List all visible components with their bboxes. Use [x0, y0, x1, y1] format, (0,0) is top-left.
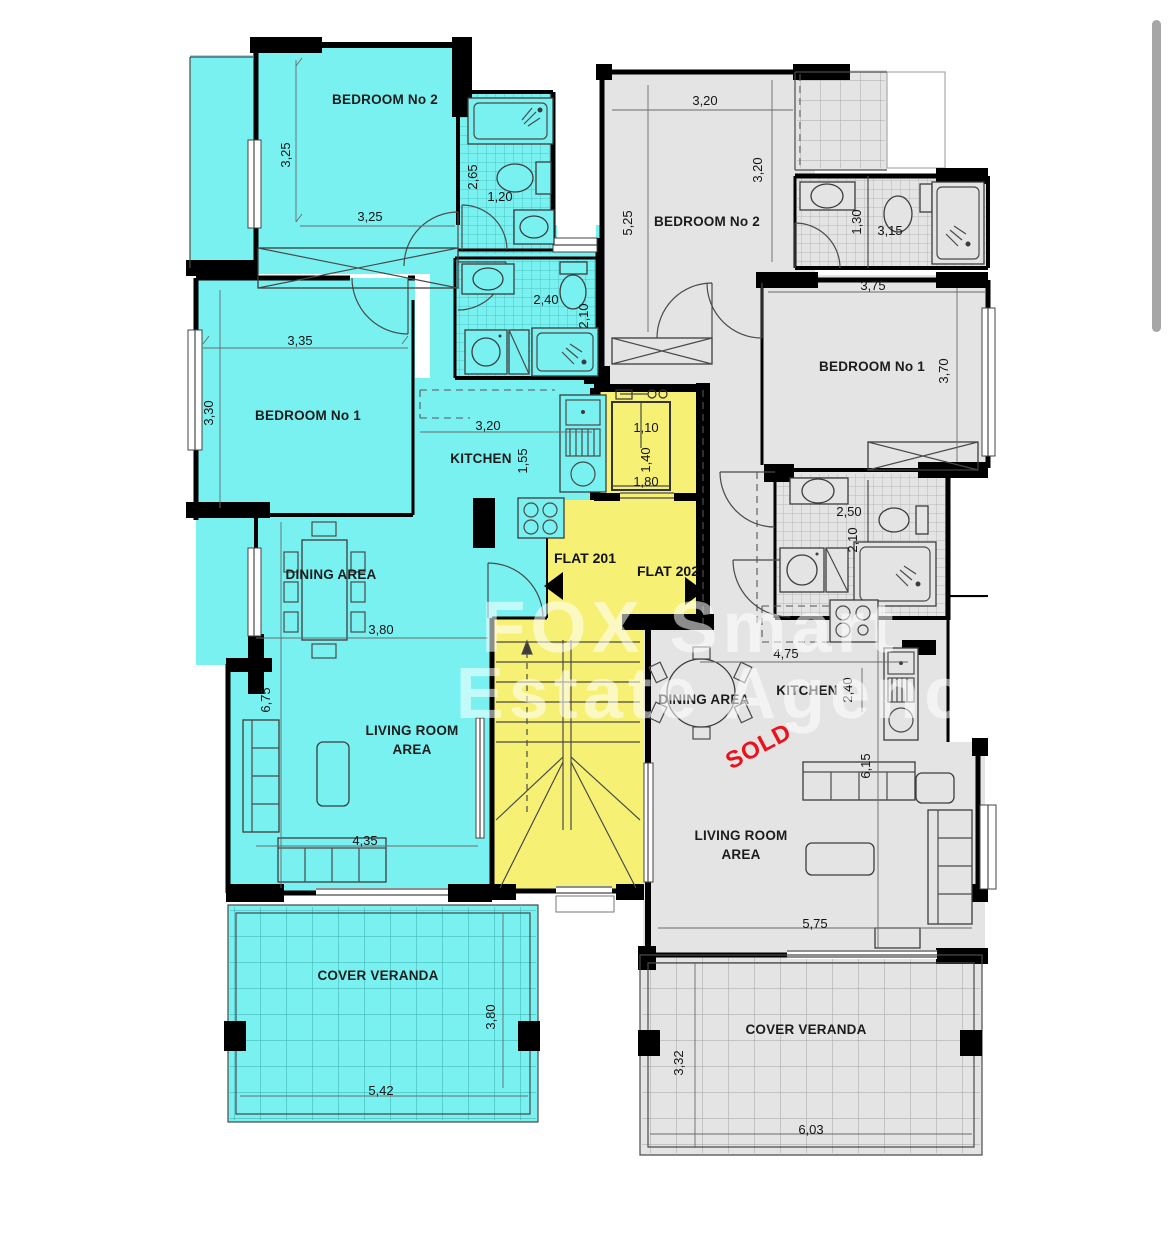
- sofa: [243, 720, 279, 832]
- cabinet: [509, 330, 529, 374]
- svg-text:3,15: 3,15: [877, 223, 902, 238]
- svg-text:3,75: 3,75: [860, 278, 885, 293]
- svg-text:2,65: 2,65: [465, 164, 480, 189]
- sink: [462, 264, 514, 294]
- floor-plan-page: BEDROOM No 2 3,25 3,25 2,65 1,20 2,40 2,…: [0, 0, 1170, 1240]
- svg-text:3,35: 3,35: [287, 333, 312, 348]
- shower: [468, 98, 553, 144]
- room-label-bedroom2: BEDROOM No 2: [654, 214, 760, 229]
- flat201-label: FLAT 201: [554, 550, 616, 566]
- svg-text:3,25: 3,25: [278, 142, 293, 167]
- room-label-bedroom1: BEDROOM No 1: [819, 359, 925, 374]
- svg-text:3,32: 3,32: [671, 1050, 686, 1075]
- sink: [514, 210, 554, 244]
- svg-text:3,30: 3,30: [201, 400, 216, 425]
- room-label-veranda: COVER VERANDA: [317, 968, 438, 983]
- toilet: [560, 262, 587, 309]
- svg-text:3,20: 3,20: [750, 157, 765, 182]
- window: [188, 330, 202, 450]
- svg-text:6,03: 6,03: [798, 1122, 823, 1137]
- washing-machine: [780, 548, 824, 592]
- svg-text:3,20: 3,20: [692, 93, 717, 108]
- stove: [518, 498, 564, 538]
- svg-text:6,75: 6,75: [258, 687, 273, 712]
- watermark-line2: Estate Agency: [456, 654, 1015, 734]
- shower: [932, 182, 984, 264]
- sink: [800, 182, 855, 210]
- lightwell-gap: [557, 78, 596, 238]
- svg-text:3,70: 3,70: [936, 358, 951, 383]
- svg-text:1,30: 1,30: [849, 209, 864, 234]
- flat202-label: FLAT 202: [637, 563, 699, 579]
- armchair: [916, 773, 954, 803]
- room-label-bedroom1: BEDROOM No 1: [255, 408, 361, 423]
- toilet: [879, 506, 928, 534]
- floor-plan-drawing: BEDROOM No 2 3,25 3,25 2,65 1,20 2,40 2,…: [0, 0, 1170, 1240]
- window: [644, 763, 653, 882]
- window: [248, 548, 261, 636]
- svg-text:1,20: 1,20: [487, 189, 512, 204]
- svg-text:3,80: 3,80: [483, 1004, 498, 1029]
- cabinet: [826, 548, 848, 592]
- coffee-table: [317, 742, 349, 806]
- window: [553, 238, 597, 252]
- svg-text:5,42: 5,42: [368, 1083, 393, 1098]
- tv-cabinet: [875, 928, 920, 948]
- room-label-veranda: COVER VERANDA: [745, 1022, 866, 1037]
- svg-text:5,75: 5,75: [802, 916, 827, 931]
- svg-text:AREA: AREA: [721, 847, 760, 862]
- svg-text:1,10: 1,10: [633, 420, 658, 435]
- coffee-table: [806, 843, 874, 875]
- washing-machine: [465, 330, 507, 374]
- svg-text:2,50: 2,50: [836, 504, 861, 519]
- svg-text:6,15: 6,15: [858, 753, 873, 778]
- svg-text:1,55: 1,55: [515, 448, 530, 473]
- svg-text:1,40: 1,40: [638, 447, 653, 472]
- svg-text:AREA: AREA: [392, 742, 431, 757]
- roof-outline: [887, 72, 945, 168]
- svg-text:3,20: 3,20: [475, 418, 500, 433]
- shower: [532, 328, 598, 376]
- svg-text:3,25: 3,25: [357, 209, 382, 224]
- room-label-living: LIVING ROOM: [366, 723, 459, 738]
- svg-text:2,10: 2,10: [845, 527, 860, 552]
- svg-text:4,35: 4,35: [352, 833, 377, 848]
- room-label-dining: DINING AREA: [286, 567, 377, 582]
- svg-text:1,80: 1,80: [633, 474, 658, 489]
- sink: [790, 478, 848, 504]
- vertical-scrollbar-thumb[interactable]: [1152, 20, 1161, 332]
- window: [248, 140, 261, 228]
- svg-text:5,25: 5,25: [620, 210, 635, 235]
- svg-text:3,80: 3,80: [368, 622, 393, 637]
- room-label-living: LIVING ROOM: [695, 828, 788, 843]
- room-label-bedroom2: BEDROOM No 2: [332, 92, 438, 107]
- room-label-kitchen: KITCHEN: [450, 451, 511, 466]
- window: [982, 308, 995, 456]
- window: [980, 805, 996, 889]
- svg-text:2,40: 2,40: [533, 292, 558, 307]
- kitchen-unit: [560, 395, 606, 492]
- sofa: [928, 810, 972, 924]
- svg-text:2,10: 2,10: [576, 303, 591, 328]
- window: [476, 718, 484, 838]
